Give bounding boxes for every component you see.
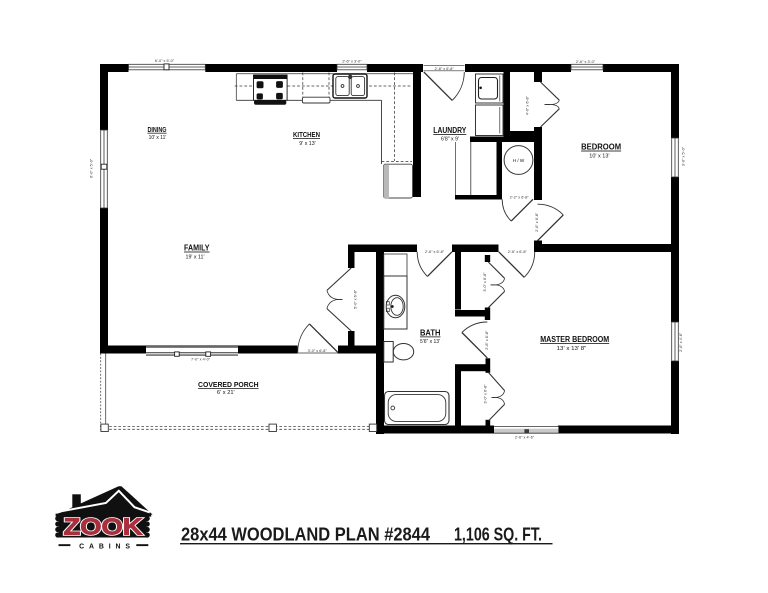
svg-text:BEDROOM: BEDROOM: [581, 143, 621, 152]
svg-text:28x44 WOODLAND PLAN #2844: 28x44 WOODLAND PLAN #2844: [181, 523, 431, 544]
svg-text:2'-6" x 6'-8": 2'-6" x 6'-8": [508, 250, 528, 254]
svg-text:10' x 11': 10' x 11': [149, 135, 167, 141]
svg-text:4'-0" x 6'-8": 4'-0" x 6'-8": [526, 95, 530, 115]
svg-text:2'-6" x 4'-6": 2'-6" x 4'-6": [679, 332, 683, 352]
svg-text:1,106 SQ. FT.: 1,106 SQ. FT.: [454, 523, 542, 544]
svg-text:6'-0" x 5'-0": 6'-0" x 5'-0": [155, 59, 175, 63]
svg-text:9' x 13': 9' x 13': [299, 141, 315, 147]
svg-text:5'6" x 13': 5'6" x 13': [420, 339, 440, 345]
svg-text:2'-6" x 6'-8": 2'-6" x 6'-8": [425, 250, 445, 254]
svg-text:6' x 21': 6' x 21': [217, 390, 235, 396]
svg-text:KITCHEN: KITCHEN: [293, 130, 320, 139]
svg-text:3'-0" x 6'-8": 3'-0" x 6'-8": [484, 384, 488, 404]
svg-text:5'-0" x 6'-8": 5'-0" x 6'-8": [354, 289, 358, 309]
svg-text:COVERED PORCH: COVERED PORCH: [198, 380, 259, 389]
svg-text:10' x 13': 10' x 13': [589, 154, 609, 160]
svg-text:7'-0" x 4'-0": 7'-0" x 4'-0": [191, 357, 211, 361]
svg-text:6'8" x 9': 6'8" x 9': [441, 137, 459, 143]
svg-text:LAUNDRY: LAUNDRY: [433, 126, 467, 135]
svg-text:2'-6" x 3'-0": 2'-6" x 3'-0": [342, 59, 362, 63]
svg-text:DINING: DINING: [148, 125, 167, 134]
svg-text:CABINS: CABINS: [79, 543, 135, 550]
svg-text:19' x 11': 19' x 11': [186, 255, 205, 261]
svg-text:3'-0" x 6'-8": 3'-0" x 6'-8": [483, 272, 487, 292]
svg-text:13' x 13' 8": 13' x 13' 8": [557, 346, 587, 352]
svg-text:2'-6" x 4'-6": 2'-6" x 4'-6": [515, 436, 535, 440]
svg-text:FAMILY: FAMILY: [184, 244, 210, 253]
svg-text:3'-0" x 5'-0": 3'-0" x 5'-0": [681, 146, 685, 166]
svg-text:3'-0" x 6'-8": 3'-0" x 6'-8": [308, 349, 328, 353]
svg-text:2'-6" x 3'-0": 2'-6" x 3'-0": [576, 60, 596, 64]
svg-text:2'-2" x 6'-8": 2'-2" x 6'-8": [510, 195, 530, 199]
svg-text:ZOOK: ZOOK: [64, 514, 143, 540]
svg-text:BATH: BATH: [420, 329, 441, 338]
svg-text:6'-0" x 5'-0": 6'-0" x 5'-0": [90, 158, 94, 178]
svg-text:2'-6" x 6'-8": 2'-6" x 6'-8": [535, 212, 539, 232]
svg-text:MASTER BEDROOM: MASTER BEDROOM: [540, 335, 609, 344]
svg-text:2'-8" x 6'-8": 2'-8" x 6'-8": [435, 67, 455, 71]
svg-text:H / W: H / W: [513, 158, 525, 163]
svg-text:2'-8" x 6'-8": 2'-8" x 6'-8": [485, 330, 489, 350]
